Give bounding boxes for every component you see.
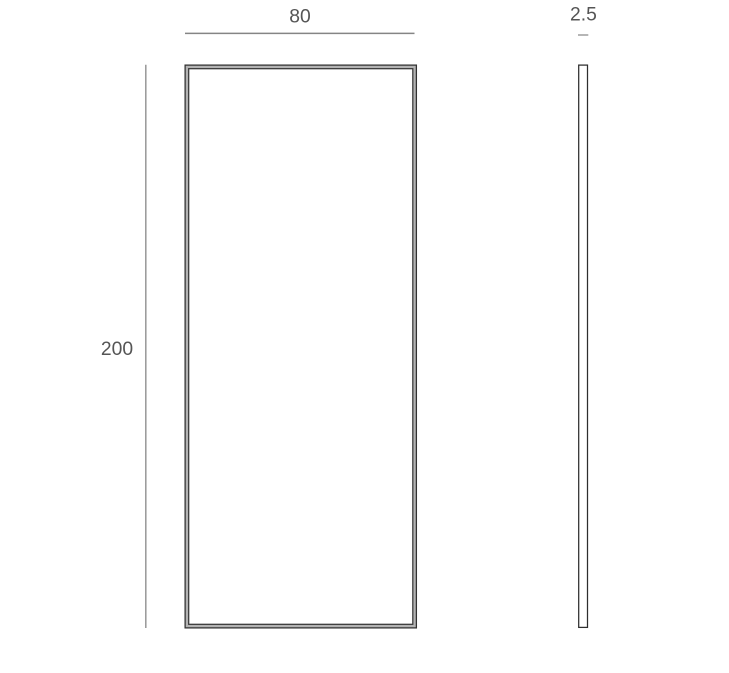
svg-text:80: 80: [289, 7, 310, 28]
svg-text:2.5: 2.5: [570, 5, 597, 26]
svg-text:200: 200: [101, 339, 133, 360]
